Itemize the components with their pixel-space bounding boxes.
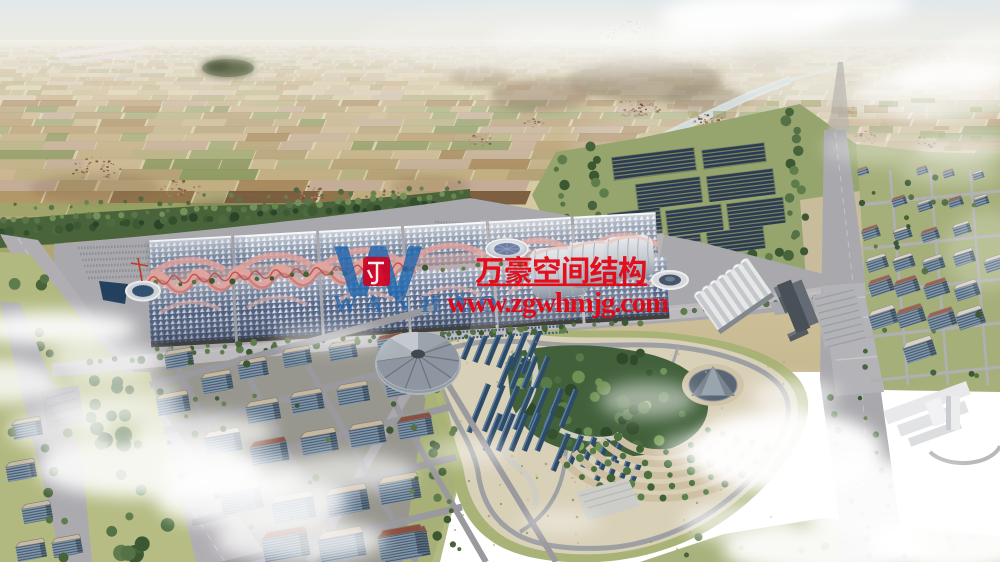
svg-text:www.zgwhmjg.com: www.zgwhmjg.com xyxy=(447,287,669,319)
